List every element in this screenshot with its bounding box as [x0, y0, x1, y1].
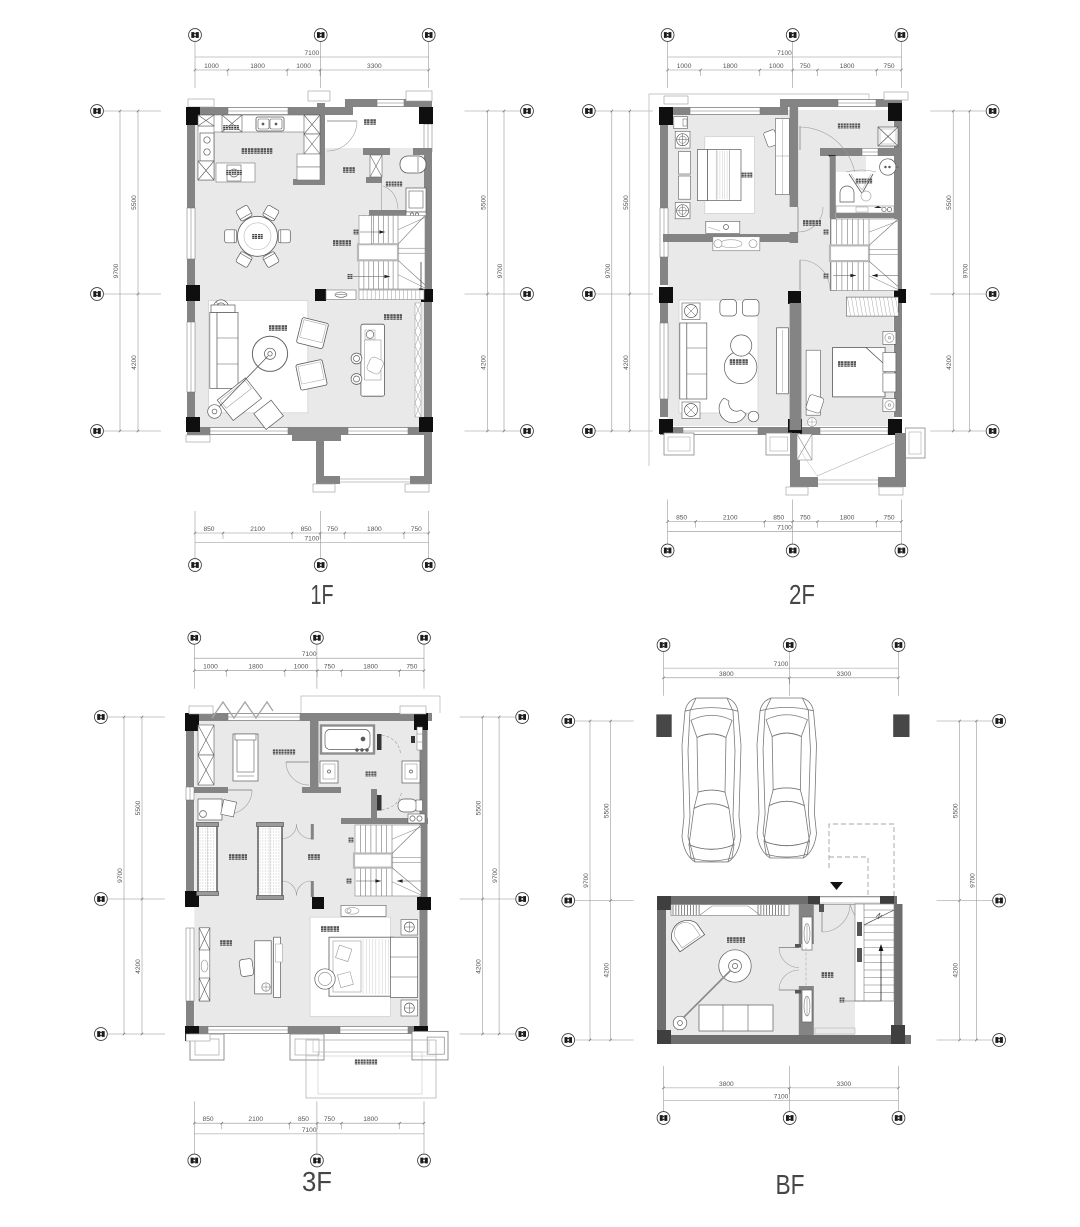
svg-text:3300: 3300	[367, 63, 382, 70]
svg-text:1800: 1800	[367, 526, 382, 533]
svg-text:7100: 7100	[302, 1127, 317, 1134]
svg-text:1000: 1000	[769, 63, 784, 70]
svg-text:750: 750	[406, 664, 417, 671]
svg-text:7100: 7100	[305, 50, 320, 57]
svg-text:1000: 1000	[296, 63, 311, 70]
svg-text:7100: 7100	[774, 661, 789, 668]
svg-text:9700: 9700	[969, 873, 976, 888]
svg-text:5500: 5500	[604, 803, 611, 818]
svg-text:9700: 9700	[963, 263, 970, 278]
svg-text:1800: 1800	[840, 515, 855, 522]
svg-text:4200: 4200	[476, 959, 483, 974]
svg-text:1000: 1000	[204, 63, 219, 70]
svg-text:1800: 1800	[723, 63, 738, 70]
svg-text:1000: 1000	[677, 63, 692, 70]
svg-text:7100: 7100	[305, 536, 320, 543]
svg-text:1000: 1000	[294, 664, 309, 671]
svg-text:4200: 4200	[135, 959, 142, 974]
svg-text:750: 750	[411, 526, 422, 533]
svg-text:850: 850	[203, 1116, 214, 1123]
svg-text:3800: 3800	[719, 671, 734, 678]
svg-text:BF: BF	[776, 1169, 805, 1200]
svg-text:5500: 5500	[131, 195, 138, 210]
svg-text:1800: 1800	[363, 1116, 378, 1123]
svg-text:7100: 7100	[774, 1093, 789, 1100]
svg-text:5500: 5500	[481, 195, 488, 210]
svg-text:5500: 5500	[953, 803, 960, 818]
svg-text:9700: 9700	[497, 263, 504, 278]
svg-text:850: 850	[301, 526, 312, 533]
svg-text:4200: 4200	[953, 963, 960, 978]
svg-text:9700: 9700	[583, 873, 590, 888]
svg-text:1800: 1800	[840, 63, 855, 70]
svg-text:1F: 1F	[311, 579, 334, 610]
svg-text:5500: 5500	[135, 800, 142, 815]
svg-text:2100: 2100	[723, 515, 738, 522]
svg-text:750: 750	[884, 63, 895, 70]
svg-text:850: 850	[773, 515, 784, 522]
svg-text:1800: 1800	[250, 63, 265, 70]
svg-text:750: 750	[324, 664, 335, 671]
svg-text:1000: 1000	[203, 664, 218, 671]
svg-text:9700: 9700	[605, 263, 612, 278]
svg-text:750: 750	[327, 526, 338, 533]
svg-text:850: 850	[298, 1116, 309, 1123]
svg-text:3300: 3300	[837, 671, 852, 678]
svg-text:9700: 9700	[117, 868, 124, 883]
svg-text:3300: 3300	[837, 1081, 852, 1088]
svg-text:850: 850	[676, 515, 687, 522]
svg-text:9700: 9700	[113, 263, 120, 278]
svg-text:1800: 1800	[248, 664, 263, 671]
svg-text:9700: 9700	[492, 868, 499, 883]
svg-text:5500: 5500	[476, 800, 483, 815]
svg-text:850: 850	[203, 526, 214, 533]
svg-text:7100: 7100	[777, 50, 792, 57]
svg-text:750: 750	[800, 515, 811, 522]
svg-text:5500: 5500	[946, 195, 953, 210]
svg-text:1800: 1800	[363, 664, 378, 671]
svg-text:750: 750	[324, 1116, 335, 1123]
svg-text:4200: 4200	[131, 355, 138, 370]
svg-text:4200: 4200	[604, 963, 611, 978]
svg-text:2F: 2F	[789, 579, 815, 610]
svg-text:3800: 3800	[719, 1081, 734, 1088]
svg-text:4200: 4200	[946, 355, 953, 370]
svg-text:7100: 7100	[777, 524, 792, 531]
svg-text:4200: 4200	[481, 355, 488, 370]
svg-text:2100: 2100	[248, 1116, 263, 1123]
svg-text:5500: 5500	[623, 195, 630, 210]
svg-text:7100: 7100	[302, 651, 317, 658]
svg-text:750: 750	[884, 515, 895, 522]
svg-text:2100: 2100	[250, 526, 265, 533]
svg-text:4200: 4200	[623, 355, 630, 370]
svg-text:3F: 3F	[302, 1166, 332, 1197]
svg-text:750: 750	[800, 63, 811, 70]
